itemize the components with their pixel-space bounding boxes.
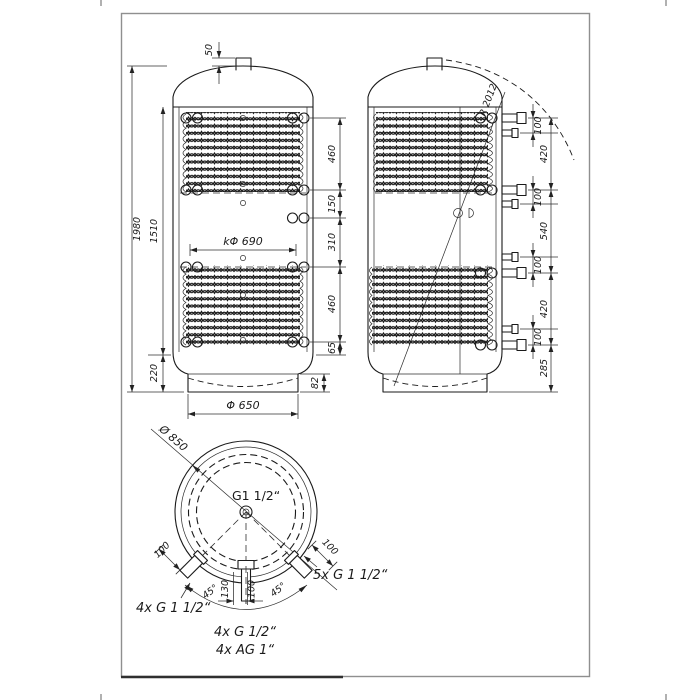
upper-coil: [376, 112, 488, 192]
dim-base-height: 220: [149, 364, 160, 382]
dim-pair-4: 100: [533, 328, 544, 346]
label-center-connection: G1 1/2“: [232, 488, 280, 503]
dim-total-height: 1980: [132, 217, 143, 241]
label-connections-bottom-ag: 4x AG 1“: [216, 643, 274, 658]
dim-bottom-offset: 285: [539, 359, 550, 377]
dim-gap-middle: 310: [327, 233, 338, 251]
dim-skirt-height: 82: [310, 377, 321, 389]
upper-coil: [186, 112, 300, 192]
dim-shell-height: 1510: [149, 219, 160, 243]
label-connections-bottom-small: 4x G 1/2“: [214, 625, 276, 640]
dim-coil-bottom: 65: [327, 342, 338, 354]
dim-offset-100: 100: [247, 580, 258, 598]
dim-base-diameter: Φ 650: [226, 399, 259, 412]
dim-upper-coil: 460: [327, 145, 338, 163]
drawing-page: 50 1980 1510 220 460 150 310 460 65 82: [0, 0, 700, 700]
dim-pair-2: 100: [533, 188, 544, 206]
dim-gap-upper: 150: [327, 195, 338, 213]
dim-offset-130: 130: [220, 580, 231, 598]
technical-drawing: 50 1980 1510 220 460 150 310 460 65 82: [0, 0, 700, 700]
dim-upper-span: 420: [539, 145, 550, 163]
dim-pair-3: 100: [533, 256, 544, 274]
label-connections-right: 5x G 1 1/2“: [313, 568, 388, 583]
lower-coil: [372, 265, 488, 345]
dim-pair-1: 100: [533, 116, 544, 134]
lower-coil: [186, 265, 300, 345]
dim-lower-coil: 460: [327, 295, 338, 313]
label-connections-left: 4x G 1 1/2“: [136, 601, 211, 616]
dim-lower-span: 420: [539, 300, 550, 318]
dim-middle-span: 540: [539, 222, 550, 240]
dim-nozzle-height: 50: [204, 44, 215, 56]
dim-flange-circle: kΦ 690: [223, 235, 263, 248]
